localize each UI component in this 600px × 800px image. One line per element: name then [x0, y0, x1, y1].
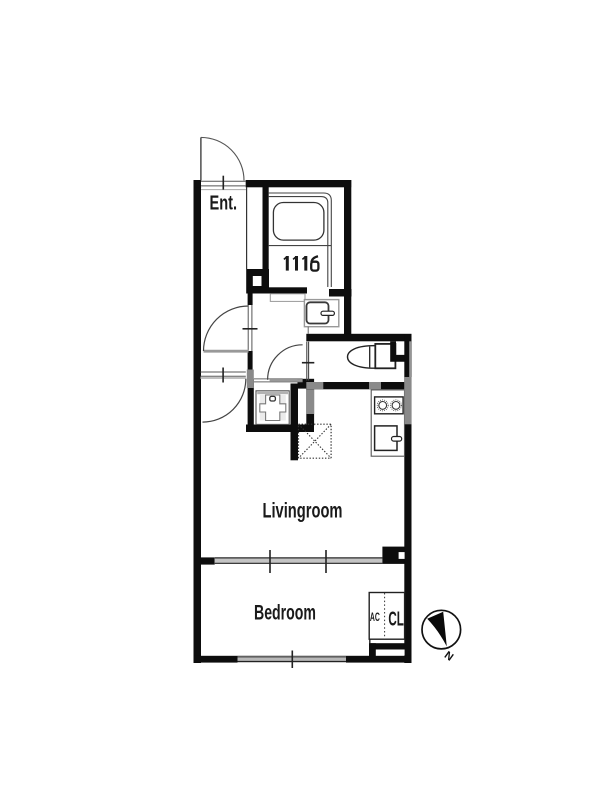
- svg-text:Livingroom: Livingroom: [263, 499, 343, 523]
- svg-text:CL: CL: [388, 608, 404, 630]
- svg-text:AC: AC: [370, 612, 380, 624]
- svg-text:Ent.: Ent.: [210, 192, 238, 214]
- svg-text:Bedroom: Bedroom: [254, 601, 316, 625]
